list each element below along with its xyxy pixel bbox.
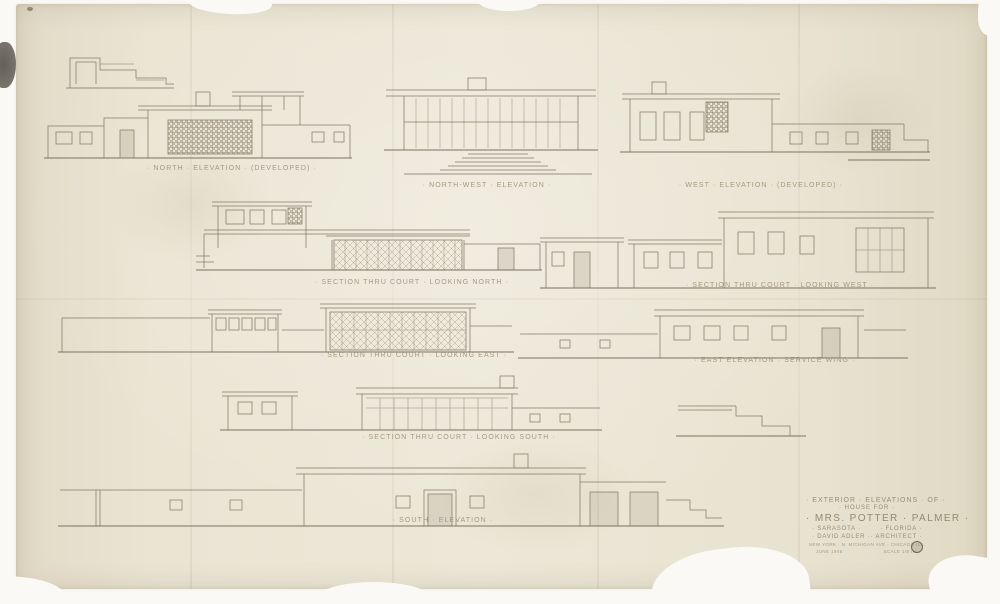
- sheet-number-stamp: [911, 541, 923, 553]
- drawing-north-elevation-developed: [44, 92, 352, 158]
- caption-east-elevation-service-wing: · EAST ELEVATION · SERVICE WING ·: [694, 357, 855, 364]
- caption-section-looking-south: · SECTION THRU COURT · LOOKING SOUTH ·: [362, 434, 556, 441]
- caption-west-elevation-developed: · WEST · ELEVATION · (DEVELOPED) ·: [679, 182, 843, 189]
- drawing-west-elevation-developed: [620, 82, 930, 160]
- drawing-section-thru-court-looking-west: [540, 212, 936, 288]
- title-line-address: NEW YORK · N. MICHIGAN AVE · CHICAGO ILL…: [806, 542, 928, 547]
- caption-section-looking-west: · SECTION THRU COURT · LOOKING WEST ·: [686, 282, 874, 289]
- title-state: · FLORIDA ·: [880, 526, 922, 532]
- drawing-north-west-elevation: [384, 78, 598, 174]
- title-block: · EXTERIOR · ELEVATIONS · OF · · HOUSE F…: [806, 497, 928, 554]
- caption-north-west-elevation: · NORTH-WEST · ELEVATION ·: [423, 182, 552, 189]
- title-line-architect: · DAVID ADLER · · ARCHITECT ·: [806, 534, 928, 540]
- title-line-house-for: · HOUSE FOR ·: [806, 505, 928, 511]
- drawing-section-thru-court-looking-east: [58, 304, 514, 352]
- drawing-south-elevation: [58, 454, 724, 526]
- drawing-parapet-detail: [66, 58, 174, 88]
- caption-section-looking-north: · SECTION THRU COURT · LOOKING NORTH ·: [315, 279, 509, 286]
- caption-south-elevation: · SOUTH · ELEVATION ·: [393, 517, 494, 524]
- photographed-drawing-sheet: · NORTH · ELEVATION · (DEVELOPED) · · NO…: [0, 0, 1000, 604]
- title-line-location: · SARASOTA · · FLORIDA ·: [806, 526, 928, 532]
- drawing-section-thru-court-looking-north: [196, 202, 542, 270]
- caption-section-looking-east: · SECTION THRU COURT · LOOKING EAST ·: [321, 352, 507, 359]
- drawing-east-elevation-service-wing: [518, 310, 908, 358]
- title-line-client-name: · MRS. POTTER · PALMER ·: [806, 513, 928, 524]
- architect-label: · ARCHITECT ·: [871, 534, 923, 540]
- drawing-section-thru-court-looking-south: [220, 376, 806, 436]
- title-line-date-scale: JUNE 1946 SCALE 1/8 IN.: [806, 549, 928, 554]
- title-date: JUNE 1946: [816, 549, 843, 554]
- paper-tear: [978, 0, 1000, 36]
- title-line-project: · EXTERIOR · ELEVATIONS · OF ·: [806, 497, 928, 504]
- paper-speck: [27, 7, 33, 11]
- architect-name: · DAVID ADLER ·: [812, 534, 871, 540]
- title-city: · SARASOTA ·: [812, 526, 861, 532]
- caption-north-elevation-developed: · NORTH · ELEVATION · (DEVELOPED) ·: [147, 165, 317, 172]
